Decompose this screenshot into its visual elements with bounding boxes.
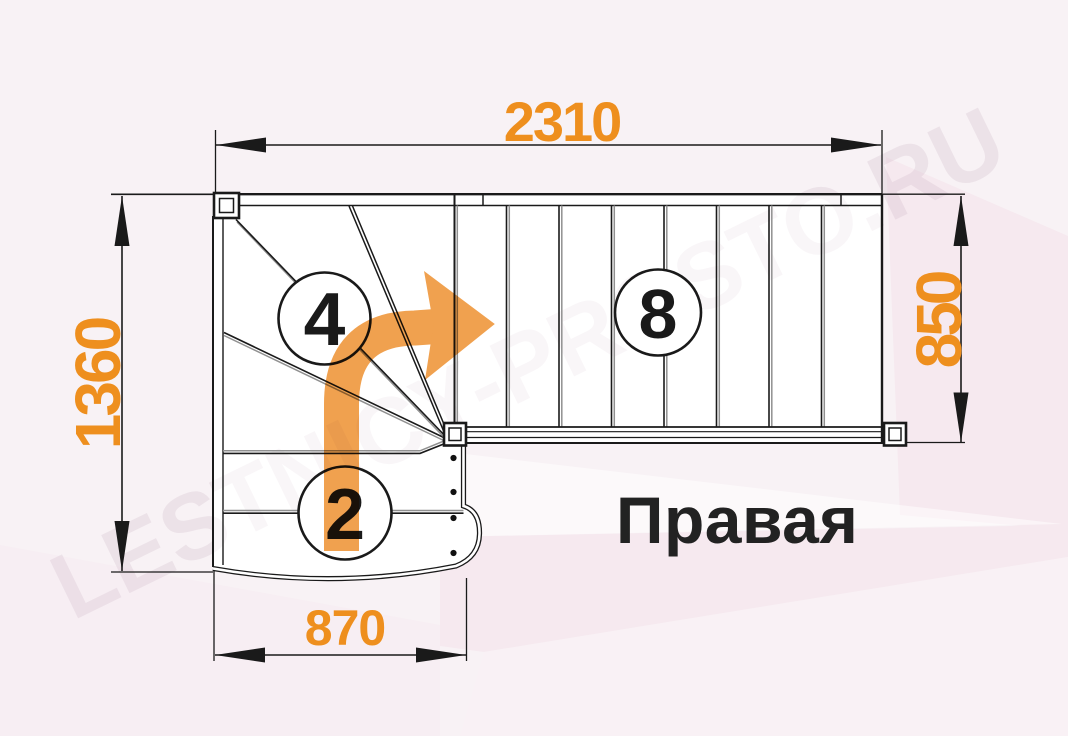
svg-text:8: 8 xyxy=(639,275,678,353)
svg-text:Правая: Правая xyxy=(616,483,858,557)
svg-text:850: 850 xyxy=(903,272,975,368)
svg-text:870: 870 xyxy=(305,600,385,656)
svg-text:2310: 2310 xyxy=(504,90,621,153)
svg-text:1360: 1360 xyxy=(62,318,134,449)
